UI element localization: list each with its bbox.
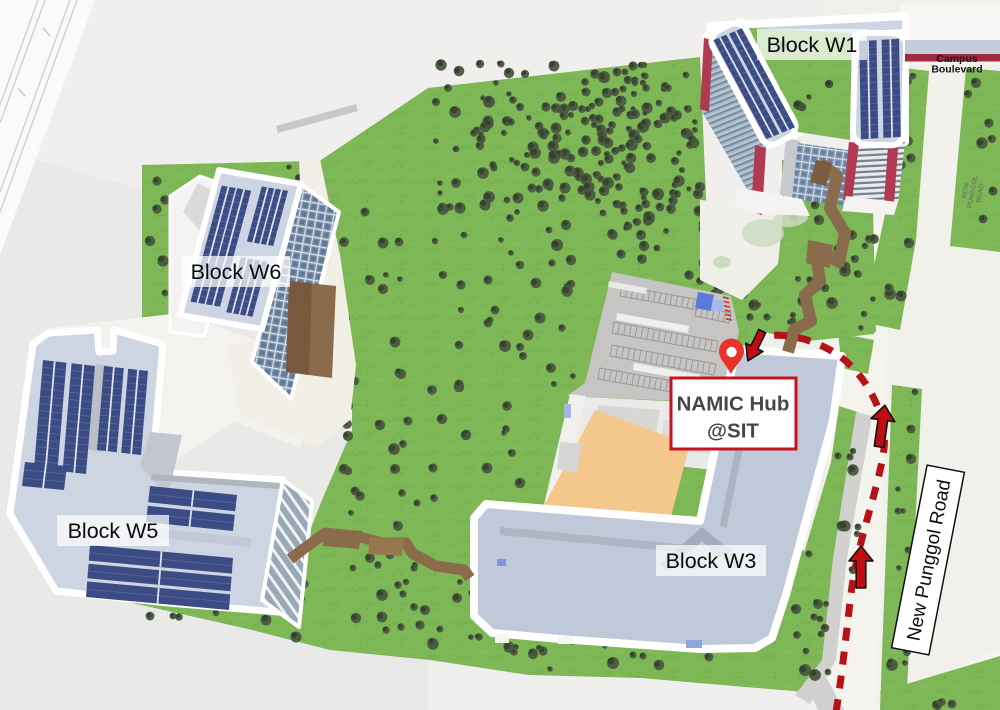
svg-text:Block W5: Block W5 (68, 519, 159, 543)
svg-text:Boulevard: Boulevard (931, 64, 982, 76)
svg-text:Block W3: Block W3 (666, 549, 757, 573)
svg-text:Block W1: Block W1 (767, 33, 858, 57)
svg-text:Block W6: Block W6 (191, 260, 282, 284)
svg-text:@SIT: @SIT (707, 420, 759, 443)
svg-text:NAMIC Hub: NAMIC Hub (677, 393, 790, 416)
